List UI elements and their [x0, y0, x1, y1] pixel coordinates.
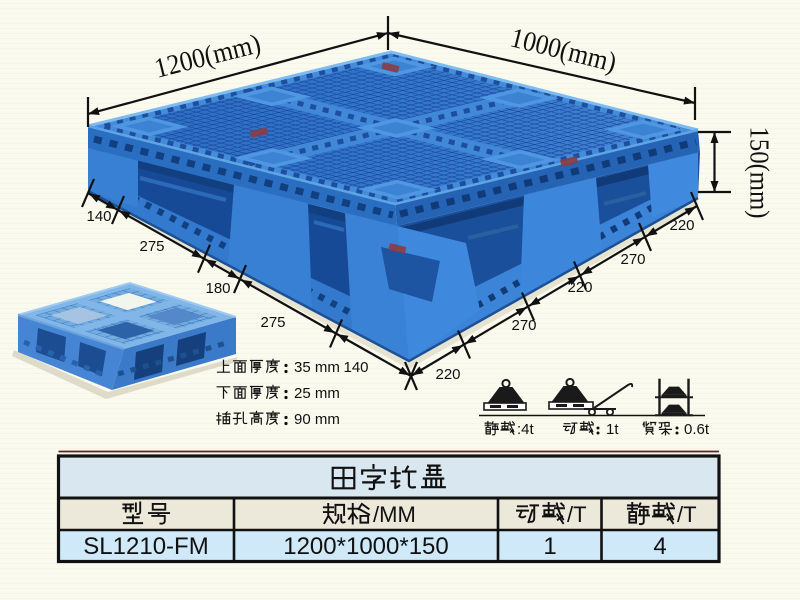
svg-text:270: 270 — [620, 251, 645, 268]
svg-text:180: 180 — [205, 280, 230, 297]
svg-text:35 mm: 35 mm — [294, 359, 340, 376]
svg-text:25 mm: 25 mm — [294, 385, 340, 402]
svg-text:140: 140 — [343, 359, 368, 376]
svg-text:1200*1000*150: 1200*1000*150 — [283, 533, 449, 560]
svg-text:4: 4 — [653, 533, 666, 560]
svg-text:270: 270 — [511, 317, 536, 334]
svg-text:/T: /T — [567, 502, 587, 527]
svg-text:275: 275 — [139, 238, 164, 255]
svg-text:90 mm: 90 mm — [294, 411, 340, 428]
svg-text::4t: :4t — [517, 421, 535, 438]
svg-text:/MM: /MM — [373, 502, 416, 527]
svg-text:SL1210-FM: SL1210-FM — [83, 533, 208, 560]
svg-text:0.6t: 0.6t — [684, 421, 710, 438]
svg-text:275: 275 — [260, 314, 285, 331]
svg-text:140: 140 — [86, 208, 111, 225]
svg-text:220: 220 — [567, 279, 592, 296]
svg-text:220: 220 — [435, 366, 460, 383]
svg-text:150(mm): 150(mm) — [745, 127, 775, 219]
svg-text:/T: /T — [677, 502, 697, 527]
svg-text:220: 220 — [669, 217, 694, 234]
svg-text:1: 1 — [543, 533, 556, 560]
svg-text:1t: 1t — [606, 421, 619, 438]
